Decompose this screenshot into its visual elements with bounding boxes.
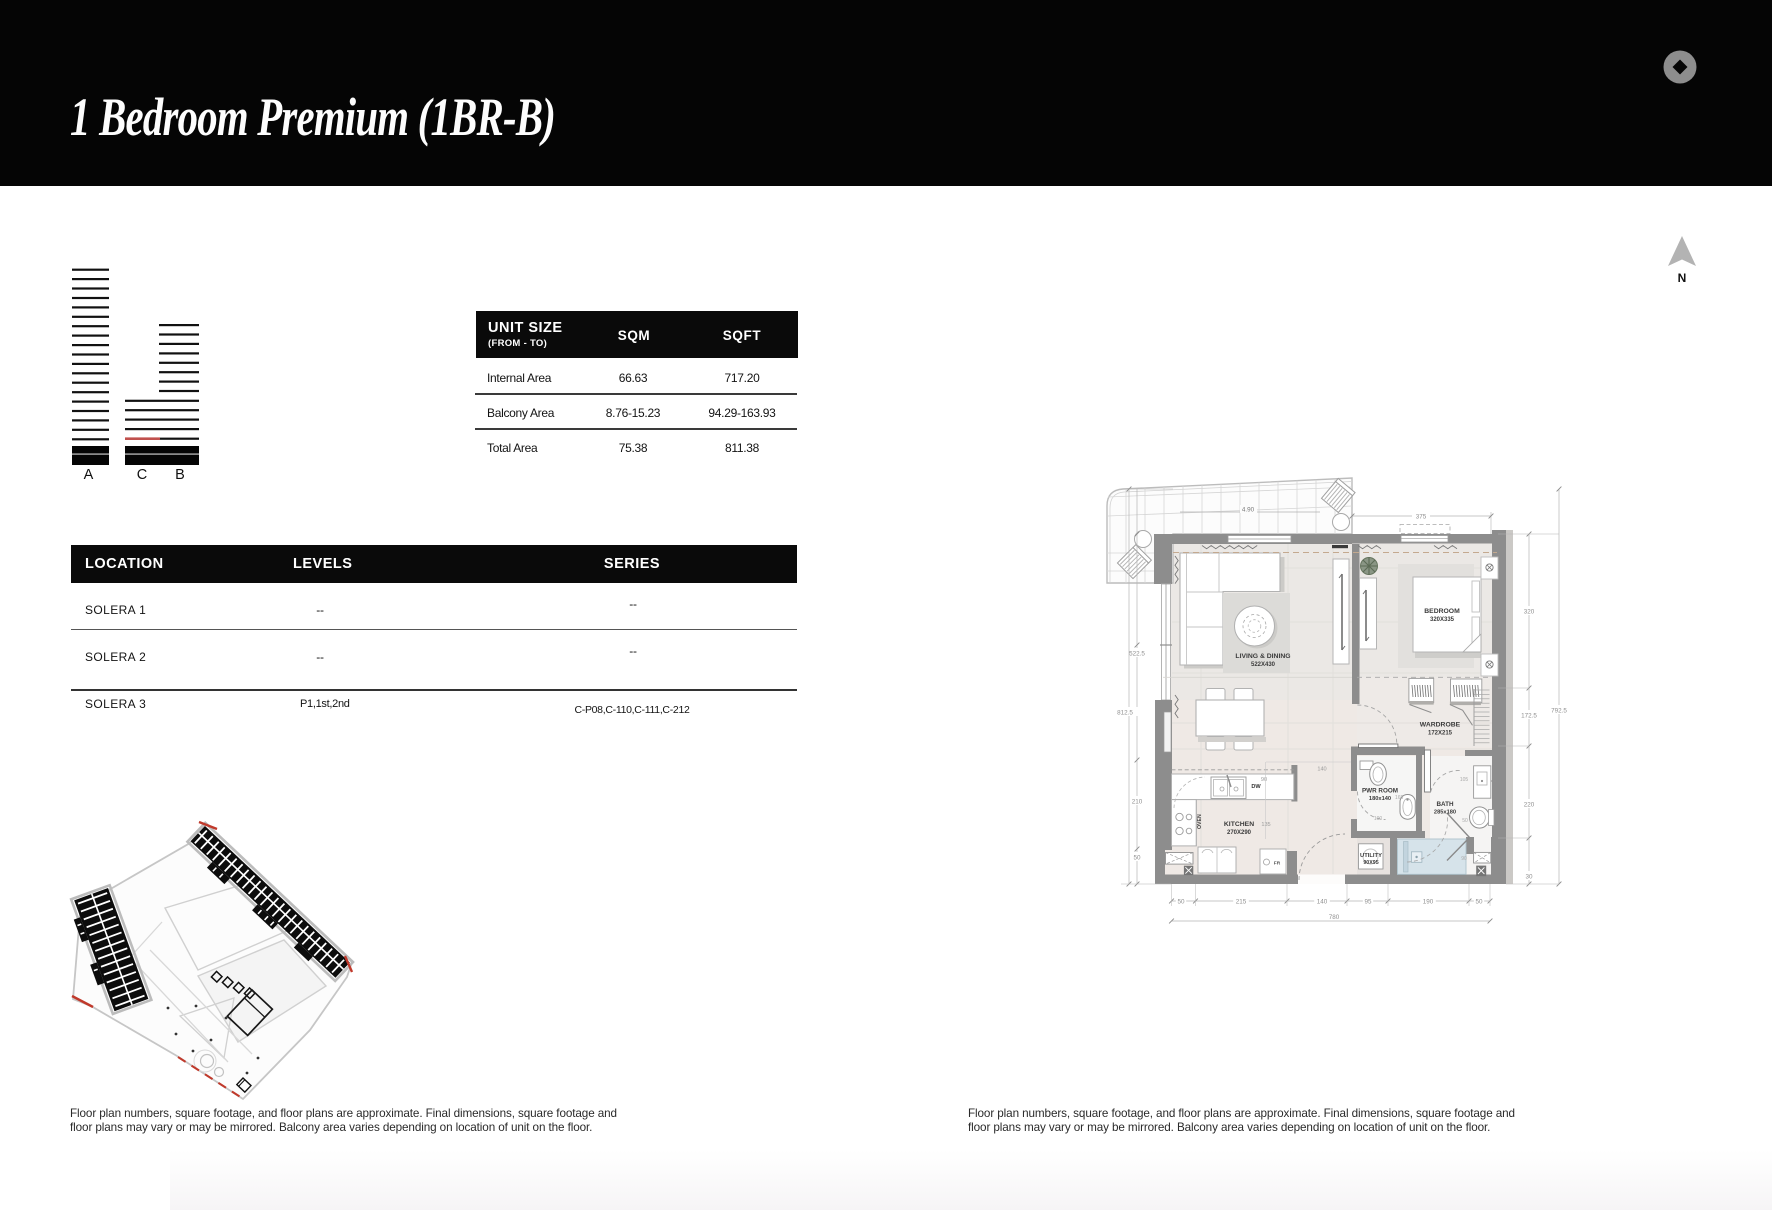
svg-text:812.5: 812.5 — [1117, 710, 1133, 717]
svg-text:4.90: 4.90 — [1242, 507, 1255, 514]
svg-text:792.5: 792.5 — [1551, 708, 1567, 715]
svg-text:OVEN: OVEN — [1197, 814, 1203, 829]
svg-text:210: 210 — [1132, 799, 1143, 806]
svg-text:180x140: 180x140 — [1369, 796, 1391, 802]
svg-text:320X335: 320X335 — [1430, 617, 1455, 623]
svg-text:140: 140 — [1317, 899, 1328, 906]
svg-text:50: 50 — [1475, 899, 1483, 906]
svg-text:BEDROOM: BEDROOM — [1424, 608, 1460, 615]
svg-text:320: 320 — [1524, 609, 1535, 616]
svg-text:B: B — [175, 467, 185, 483]
svg-text:KITCHEN: KITCHEN — [1224, 821, 1254, 828]
svg-text:105: 105 — [1460, 777, 1469, 783]
svg-text:DW: DW — [1251, 784, 1261, 790]
svg-text:522X430: 522X430 — [1251, 662, 1276, 668]
svg-text:N: N — [1678, 271, 1687, 285]
svg-text:A: A — [84, 467, 94, 483]
svg-text:UTILITY: UTILITY — [1360, 853, 1382, 859]
svg-text:BATH: BATH — [1436, 801, 1453, 808]
svg-text:375: 375 — [1416, 514, 1427, 521]
svg-text:215: 215 — [1236, 899, 1247, 906]
svg-text:FR: FR — [1274, 861, 1281, 867]
svg-text:95: 95 — [1364, 899, 1372, 906]
svg-text:172X215: 172X215 — [1428, 731, 1453, 737]
svg-text:LIVING & DINING: LIVING & DINING — [1235, 653, 1290, 660]
svg-text:135: 135 — [1261, 822, 1270, 828]
svg-text:50: 50 — [1133, 855, 1141, 862]
svg-text:50: 50 — [1177, 899, 1185, 906]
svg-text:172.5: 172.5 — [1521, 713, 1537, 720]
svg-text:270X290: 270X290 — [1227, 830, 1252, 836]
svg-text:190: 190 — [1423, 899, 1434, 906]
svg-text:30: 30 — [1525, 874, 1533, 881]
svg-text:C: C — [137, 467, 147, 483]
svg-text:780: 780 — [1329, 914, 1340, 921]
svg-text:PWR ROOM: PWR ROOM — [1362, 788, 1398, 795]
svg-text:285x180: 285x180 — [1434, 810, 1456, 816]
svg-text:90X95: 90X95 — [1363, 860, 1378, 866]
svg-text:50: 50 — [1462, 818, 1468, 824]
svg-text:522.5: 522.5 — [1129, 651, 1145, 658]
svg-text:220: 220 — [1524, 802, 1535, 809]
svg-text:140: 140 — [1317, 767, 1326, 773]
svg-text:90: 90 — [1461, 856, 1467, 862]
svg-text:100: 100 — [1374, 816, 1383, 822]
svg-text:WARDROBE: WARDROBE — [1420, 722, 1461, 729]
svg-text:90: 90 — [1261, 777, 1267, 783]
svg-text:165: 165 — [1395, 795, 1404, 801]
